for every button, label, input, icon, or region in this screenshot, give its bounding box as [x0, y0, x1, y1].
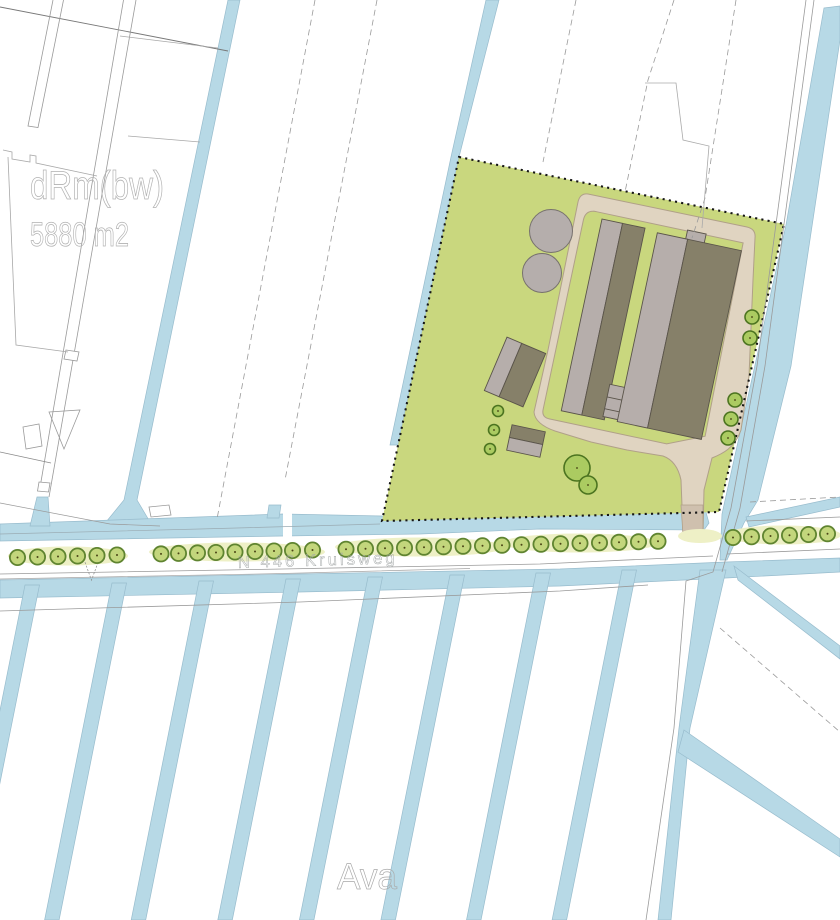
- svg-text:dRm(bw): dRm(bw): [30, 164, 164, 208]
- svg-text:Ava: Ava: [337, 856, 397, 897]
- svg-text:5880 m2: 5880 m2: [30, 216, 129, 254]
